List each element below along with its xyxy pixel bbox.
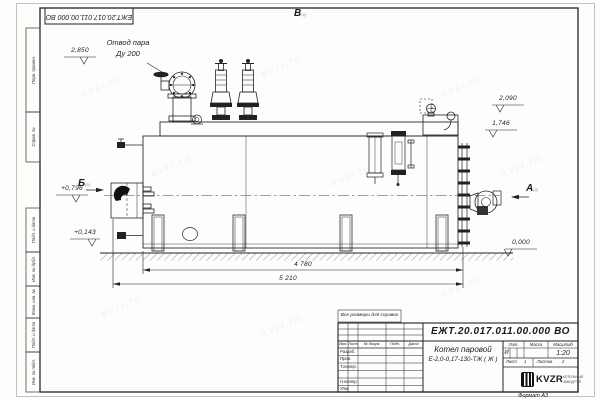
lit-value: И: [503, 350, 510, 356]
water-level-gauges: [367, 131, 414, 186]
product-name: Котел паровой: [423, 346, 503, 354]
drum-valve-box: [420, 99, 458, 135]
dimension-body-length: 4 780: [278, 262, 328, 269]
reference-note: Все размеры для справок: [338, 314, 401, 319]
margin-label: Подп. и дата: [26, 318, 40, 352]
row-prov: Пров.: [340, 357, 351, 361]
ground-line: [100, 253, 513, 261]
product-designation: Е-2,0-0,17-130-ТЖ ( Ж ): [423, 357, 503, 363]
rear-flange: [458, 143, 470, 247]
safety-valve: [210, 59, 232, 120]
col-header-mass: Масса: [524, 343, 548, 347]
sheets-label: Листов: [537, 360, 552, 364]
row-tkontr: Т.контр.: [340, 365, 357, 369]
margin-label: Справ. №: [26, 112, 40, 162]
format-label: Формат А3: [518, 394, 548, 400]
elevation-steam-outlet: 2,850: [63, 48, 97, 55]
safety-valves: [210, 59, 259, 120]
view-label-v: В(2): [294, 9, 306, 19]
kvzr-logo-icon: [521, 372, 534, 387]
burner: [111, 183, 154, 218]
col-header-scale: Масштаб: [548, 343, 578, 347]
view-sheet-ref: (2): [301, 12, 306, 17]
elevation-base: +0,143: [67, 230, 103, 237]
view-label-a: А(2): [526, 184, 538, 194]
sheet-label: Лист: [506, 360, 517, 364]
header-izm: Изм.: [338, 343, 348, 347]
row-nkontr: Н.контр.: [340, 380, 358, 384]
support-legs: [152, 215, 448, 251]
flue-blower: [470, 191, 501, 215]
logo-caption-line2: ЗАВОД РЭП: [563, 381, 581, 384]
dimension-overall-length: 5 210: [263, 276, 313, 283]
elevation-shell-top: 1,746: [484, 121, 518, 128]
safety-valve: [237, 59, 259, 120]
header-data: Дата: [404, 343, 423, 347]
steam-outlet-callout-line1: Отвод пара: [98, 39, 158, 47]
elevation-ground: 0,000: [503, 240, 539, 247]
header-podp: Подп.: [386, 343, 404, 347]
margin-label: Инв. № дубл.: [26, 252, 40, 286]
header-docnum: № докум.: [358, 343, 386, 347]
header-list: Лист: [348, 343, 358, 347]
logo-caption-line1: КОТЕЛЬНЫЙ: [563, 376, 583, 379]
elevation-drum-top: 2,090: [491, 96, 525, 103]
scale-value: 1:20: [548, 350, 578, 357]
margin-label: Инв. № подл.: [26, 352, 40, 392]
col-header-lit: Лит.: [503, 343, 524, 347]
margin-label: Подп. и дата: [26, 208, 40, 252]
steam-outlet-valve: [154, 72, 197, 122]
top-stamp-doc-number: ЕЖТ.20.017.011.00.000 ВО: [45, 8, 133, 24]
title-doc-number: ЕЖТ.20.017.011.00.000 ВО: [423, 323, 578, 341]
sheet-value: 1: [524, 360, 526, 364]
elevation-burner-axis: +0,796: [54, 186, 90, 193]
kvzr-logo-text: KVZR: [536, 375, 563, 385]
margin-label: Перв. примен.: [26, 28, 40, 112]
steam-outlet-callout-line2: Ду 200: [98, 50, 158, 58]
margin-label: Взам. инв. №: [26, 286, 40, 318]
sheets-value: 2: [562, 360, 564, 364]
view-sheet-ref: (2): [533, 187, 538, 192]
drawing-sheet: kvzr.ru kvzr.ru kvzr.ru kvzr.ru kvzr.ru …: [0, 0, 600, 400]
row-utv: Утв.: [340, 387, 350, 391]
row-razrab: Разраб.: [340, 350, 355, 354]
